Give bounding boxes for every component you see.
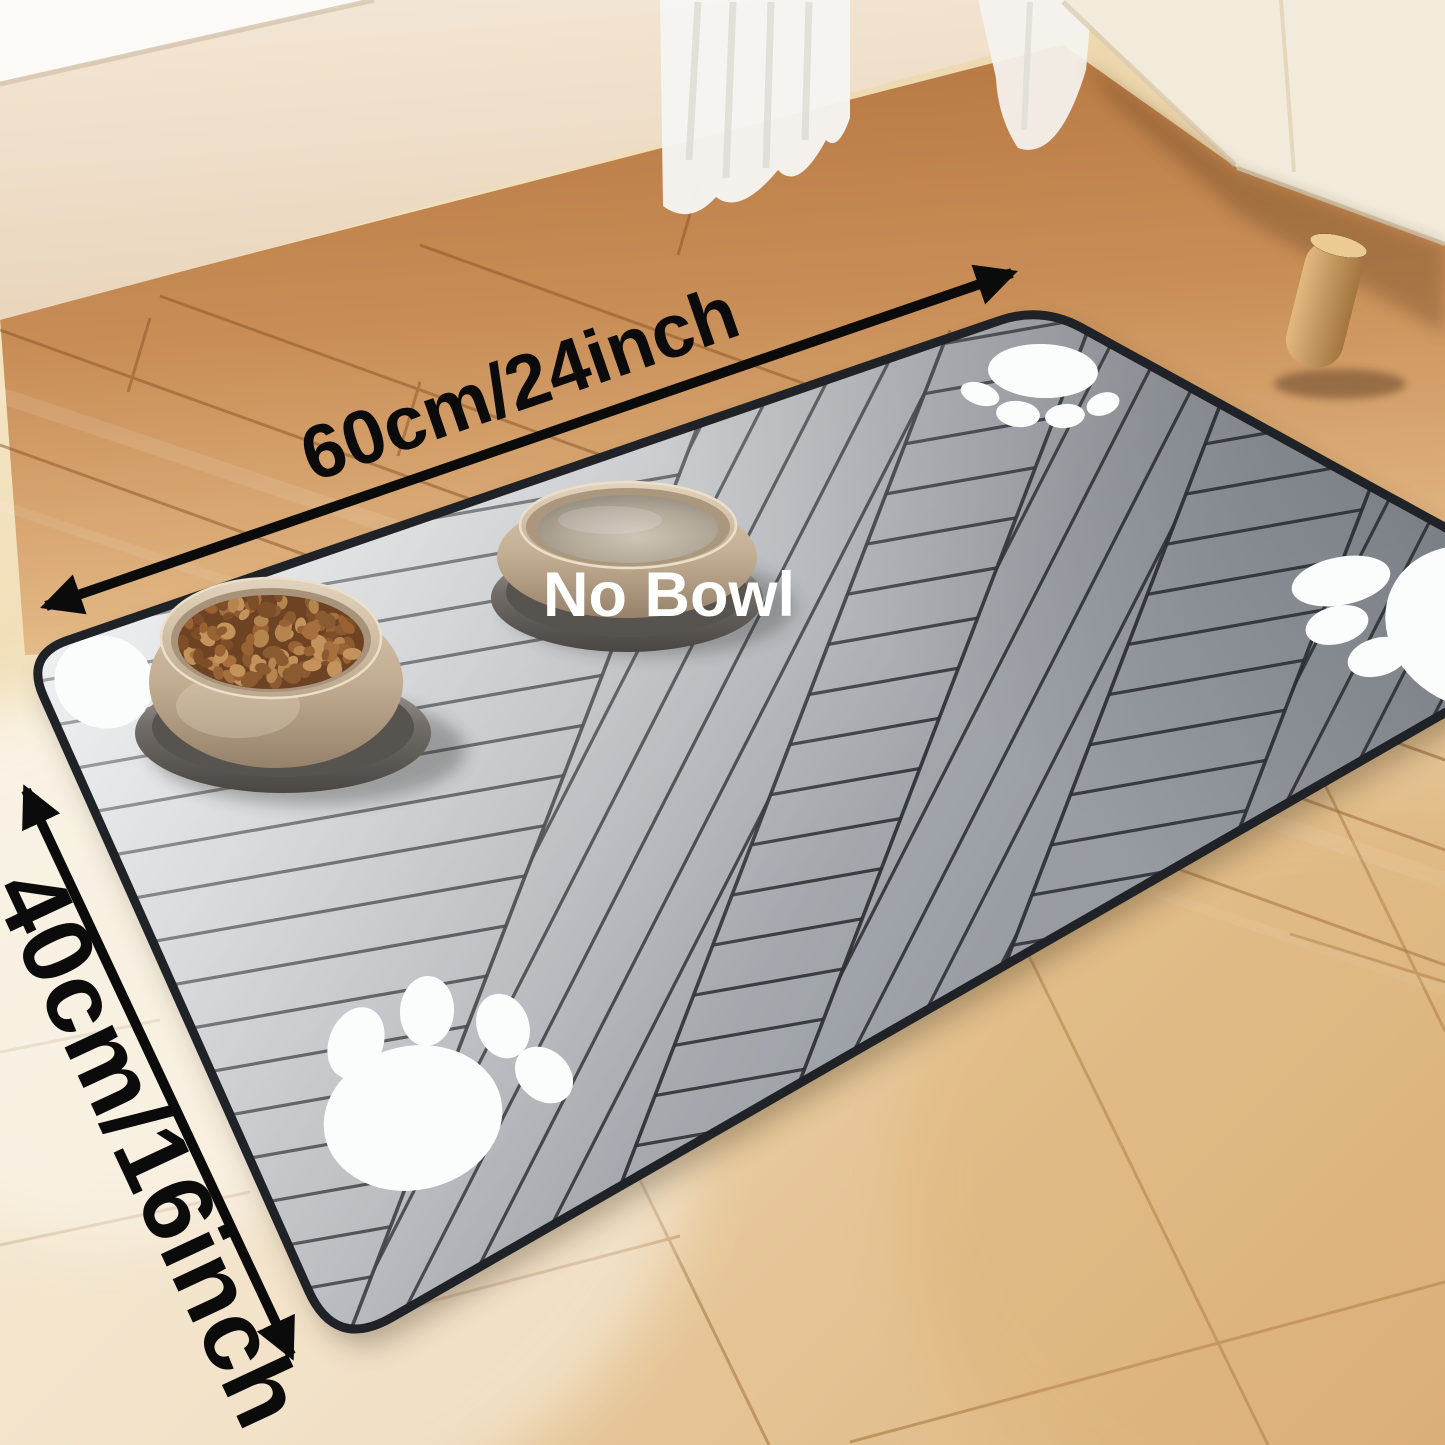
product-photo-stage: 60cm/24inch 40cm/16inch No Bowl xyxy=(0,0,1445,1445)
no-bowl-label: No Bowl xyxy=(543,560,795,630)
pet-mat-scene: 60cm/24inch 40cm/16inch No Bowl xyxy=(0,0,1445,1445)
water-highlight xyxy=(558,506,662,534)
cabinet-leg-shadow xyxy=(1274,369,1406,399)
